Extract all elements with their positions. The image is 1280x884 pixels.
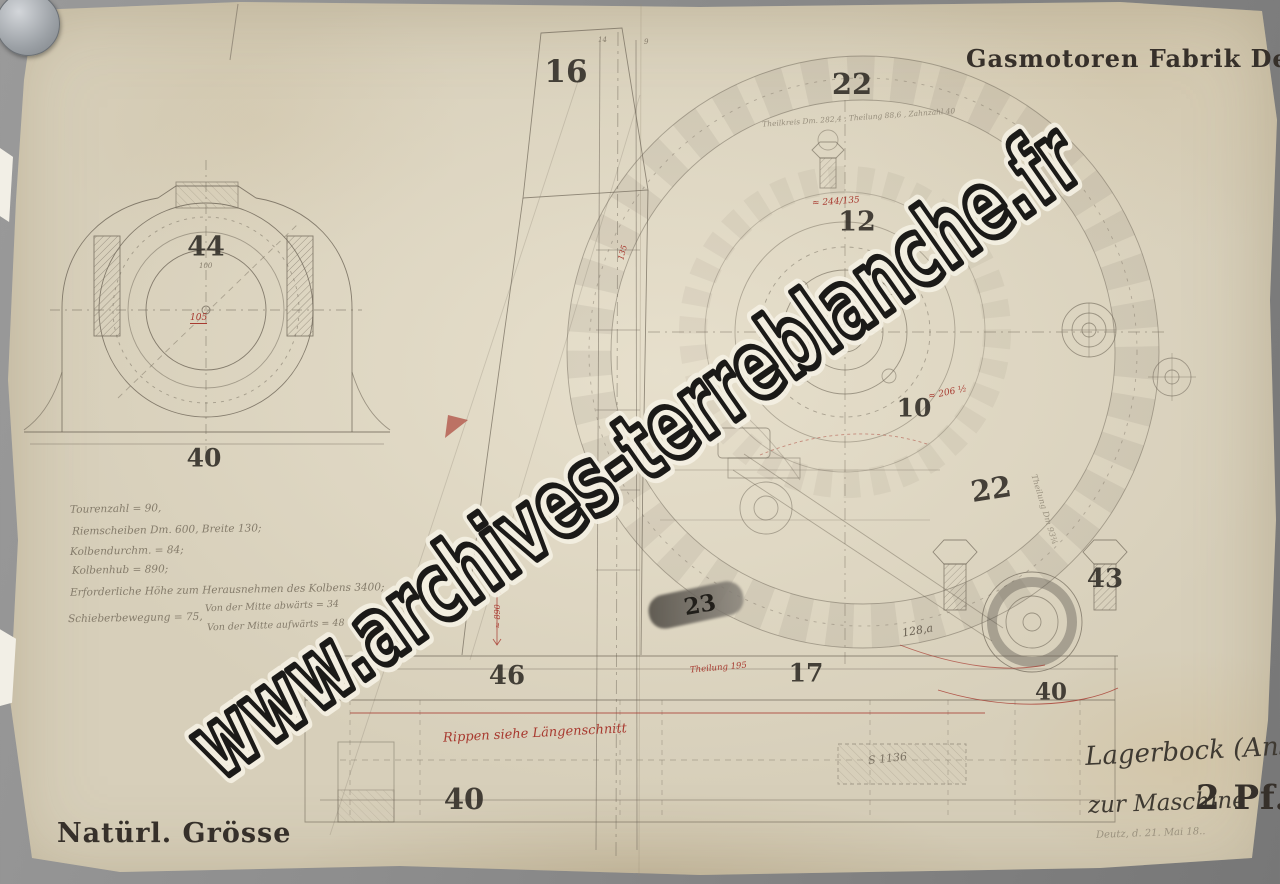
- idler-wheel: [1062, 303, 1116, 357]
- part-label-10: 10: [897, 394, 932, 423]
- part-label-44: 44: [187, 232, 225, 263]
- scanned-drawing-sheet: Gasmotoren Fabrik Deutz Natürl. Grösse L…: [0, 0, 1280, 884]
- part-label-22-top: 22: [832, 67, 872, 101]
- machine-size: 2 Pf.: [1196, 778, 1280, 818]
- company-title: Gasmotoren Fabrik Deutz: [966, 44, 1280, 73]
- bearing-section-view: [24, 160, 390, 455]
- part-label-23: 23: [682, 589, 718, 621]
- note-100: 100: [199, 262, 212, 270]
- part-label-40-left: 40: [187, 444, 222, 473]
- part-label-17: 17: [789, 659, 824, 688]
- part-label-22-right: 22: [968, 469, 1013, 509]
- note-line: Kolbenhub = 890;: [72, 563, 168, 577]
- note-line: Tourenzahl = 90,: [70, 502, 162, 516]
- scale-note: Natürl. Grösse: [57, 818, 291, 849]
- note-9: 9: [644, 38, 648, 46]
- note-line: Schieberbewegung = 75,: [68, 611, 203, 625]
- part-label-16: 16: [544, 54, 587, 90]
- red-890: ≈ 890: [493, 604, 502, 629]
- part-label-12: 12: [838, 207, 876, 238]
- red-105: 105: [190, 313, 207, 324]
- part-label-46: 46: [489, 661, 525, 691]
- note-line: Kolbendurchm. = 84;: [70, 544, 184, 558]
- part-label-40-bottom: 40: [444, 782, 484, 816]
- gear-wheel: [567, 56, 1165, 665]
- part-label-40-br: 40: [1035, 679, 1067, 706]
- note-14: 14: [598, 36, 607, 44]
- foundation-base: [300, 656, 1118, 822]
- part-label-43: 43: [1087, 564, 1123, 594]
